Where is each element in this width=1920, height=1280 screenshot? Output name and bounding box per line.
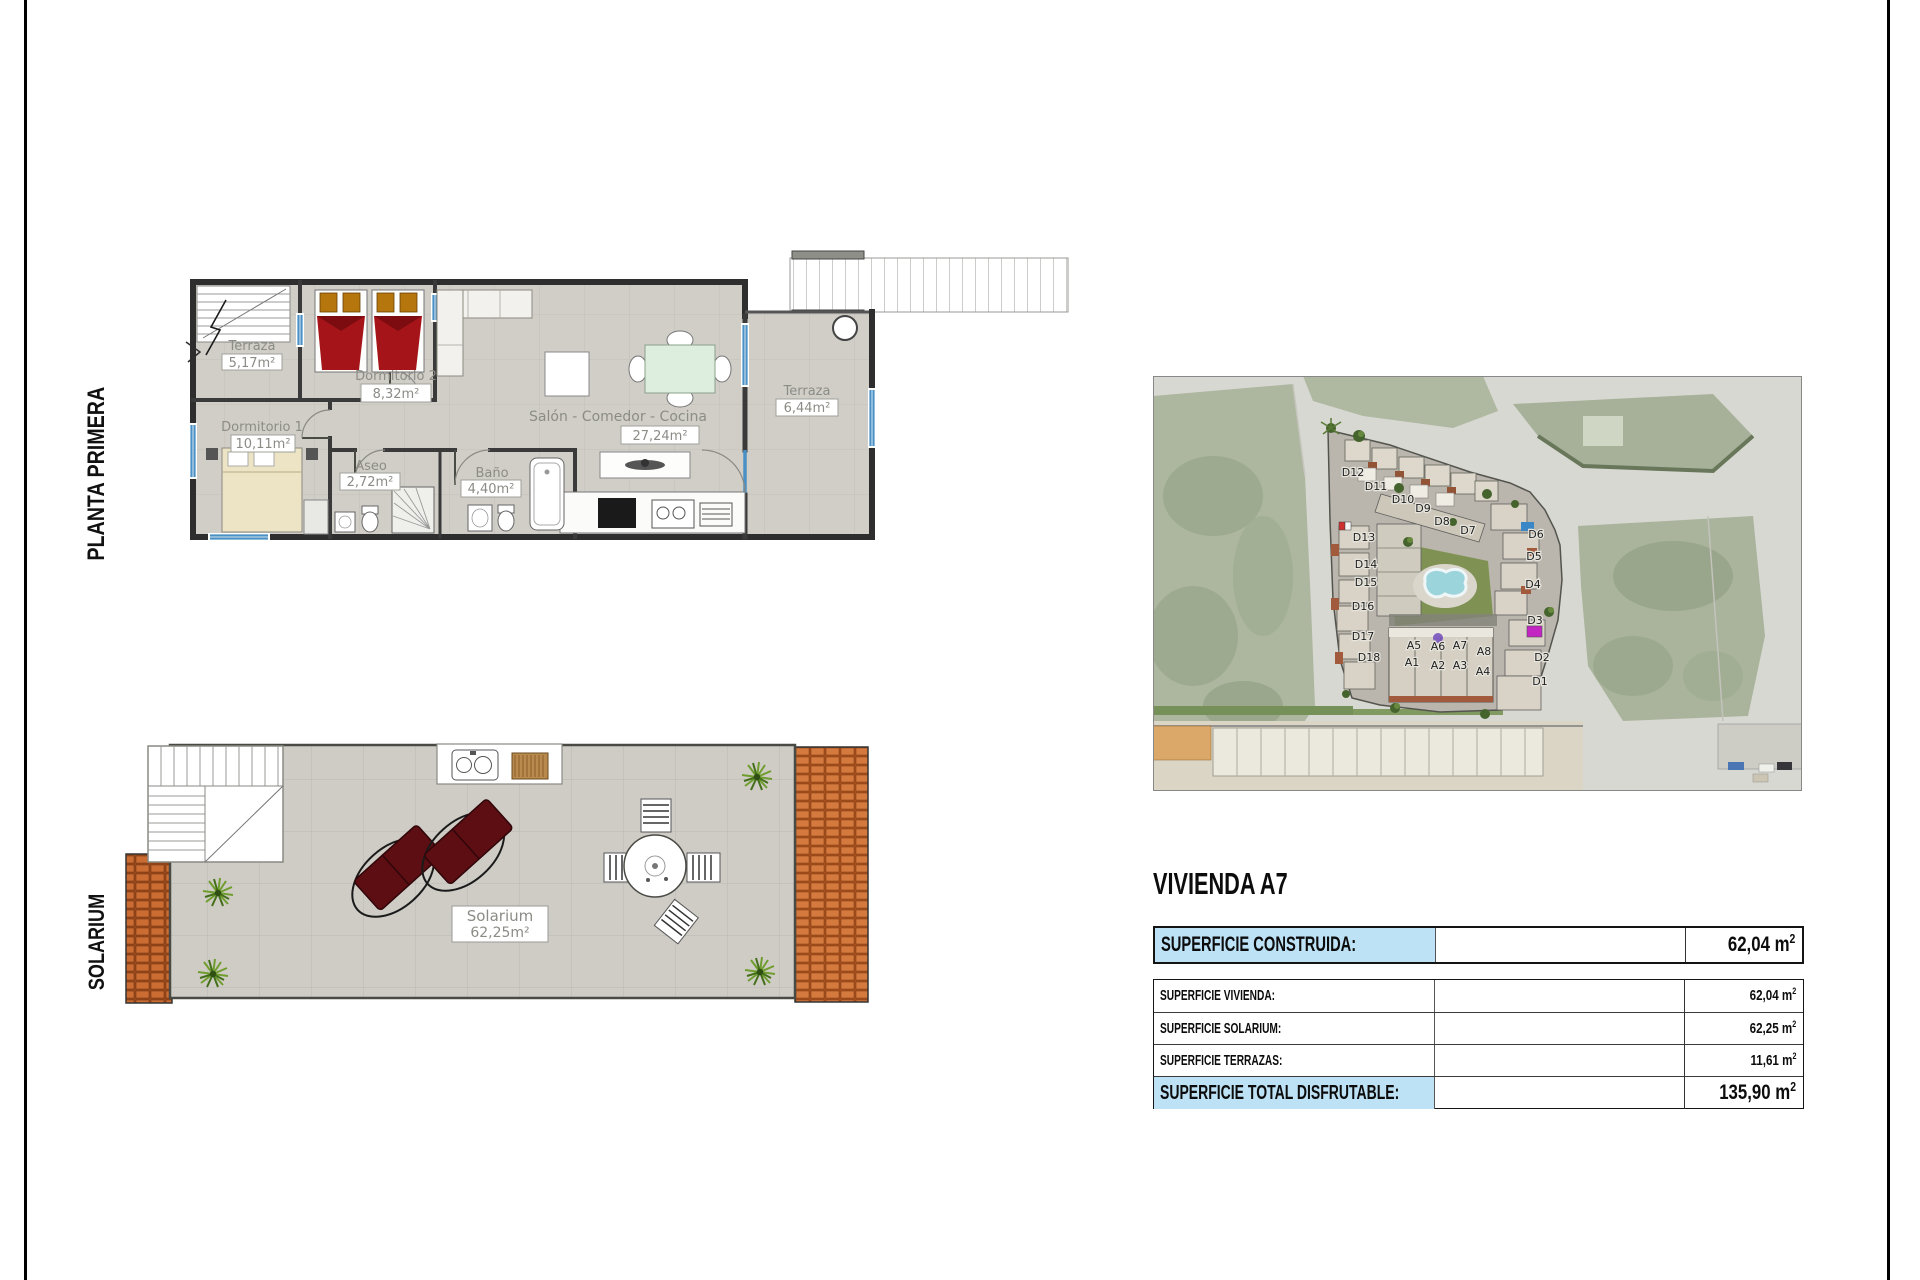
table-row-total: SUPERFICIE TOTAL DISFRUTABLE: 135,90 m2 bbox=[1154, 1076, 1803, 1109]
svg-text:Terraza: Terraza bbox=[228, 339, 276, 354]
aerial-site-map: D12 D11 D10 D9 D8 D7 D13 D14 D15 D16 D17… bbox=[1153, 376, 1802, 791]
floor-level-label: PLANTA PRIMERA bbox=[83, 393, 111, 560]
svg-text:Dormitorio 2: Dormitorio 2 bbox=[355, 369, 437, 384]
svg-text:62,25m²: 62,25m² bbox=[470, 925, 529, 941]
svg-text:Salón - Comedor - Cocina: Salón - Comedor - Cocina bbox=[529, 409, 707, 425]
plan-sheet: PLANTA PRIMERA SOLARIUM bbox=[0, 0, 1920, 1280]
page-border-left bbox=[24, 0, 27, 1280]
svg-text:5,17m²: 5,17m² bbox=[229, 356, 276, 371]
built-area-label-cell: SUPERFICIE CONSTRUIDA: bbox=[1155, 928, 1436, 962]
unit-title: VIVIENDA A7 bbox=[1153, 866, 1345, 902]
tv-bench bbox=[600, 452, 690, 478]
svg-text:Baño: Baño bbox=[475, 466, 508, 481]
exterior-staircase bbox=[790, 251, 1068, 317]
room-label-terraza-der: Terraza 6,44m² bbox=[776, 384, 838, 416]
table-row: SUPERFICIE SOLARIUM: 62,25 m2 bbox=[1154, 1012, 1803, 1044]
room-label-dormitorio1: Dormitorio 1 10,11m² bbox=[221, 420, 303, 452]
roof-tiles-left bbox=[126, 854, 172, 1003]
roof-tiles-right bbox=[795, 747, 868, 1002]
svg-text:10,11m²: 10,11m² bbox=[235, 437, 290, 452]
table-row: SUPERFICIE VIVIENDA: 62,04 m2 bbox=[1154, 980, 1803, 1012]
svg-text:Terraza: Terraza bbox=[783, 384, 831, 399]
roof-kitchenette bbox=[437, 744, 562, 784]
bathtub bbox=[530, 458, 564, 530]
svg-text:Dormitorio 1: Dormitorio 1 bbox=[221, 420, 303, 435]
terrace-plant bbox=[833, 316, 857, 340]
svg-text:2,72m²: 2,72m² bbox=[347, 475, 394, 490]
svg-text:Solarium: Solarium bbox=[467, 907, 534, 925]
svg-text:8,32m²: 8,32m² bbox=[373, 387, 420, 402]
room-label-solarium: Solarium 62,25m² bbox=[452, 906, 548, 942]
svg-text:Aseo: Aseo bbox=[355, 459, 387, 474]
table-row: SUPERFICIE TERRAZAS: 11,61 m2 bbox=[1154, 1044, 1803, 1076]
area-breakdown-table: SUPERFICIE VIVIENDA: 62,04 m2 SUPERFICIE… bbox=[1153, 979, 1804, 1109]
solarium-plan-svg: Solarium 62,25m² bbox=[100, 730, 900, 1020]
room-label-dormitorio2: Dormitorio 2 8,32m² bbox=[355, 369, 437, 402]
built-area-table: SUPERFICIE CONSTRUIDA: 62,04 m2 bbox=[1153, 926, 1804, 964]
bano-fixtures bbox=[468, 505, 514, 531]
kitchen-counter bbox=[560, 492, 745, 533]
solarium-stairs bbox=[148, 746, 283, 862]
svg-text:27,24m²: 27,24m² bbox=[632, 429, 687, 444]
svg-text:6,44m²: 6,44m² bbox=[784, 401, 831, 416]
page-border-right bbox=[1887, 0, 1890, 1280]
room-label-terraza-izq: Terraza 5,17m² bbox=[222, 339, 282, 371]
shower bbox=[392, 487, 434, 533]
svg-text:4,40m²: 4,40m² bbox=[468, 482, 515, 497]
floor-plan-svg: Terraza 5,17m² Dormitorio 2 8,32m² Dormi… bbox=[120, 240, 1100, 560]
built-area-value-cell: 62,04 m2 bbox=[1686, 928, 1802, 962]
coffee-table bbox=[545, 352, 589, 396]
